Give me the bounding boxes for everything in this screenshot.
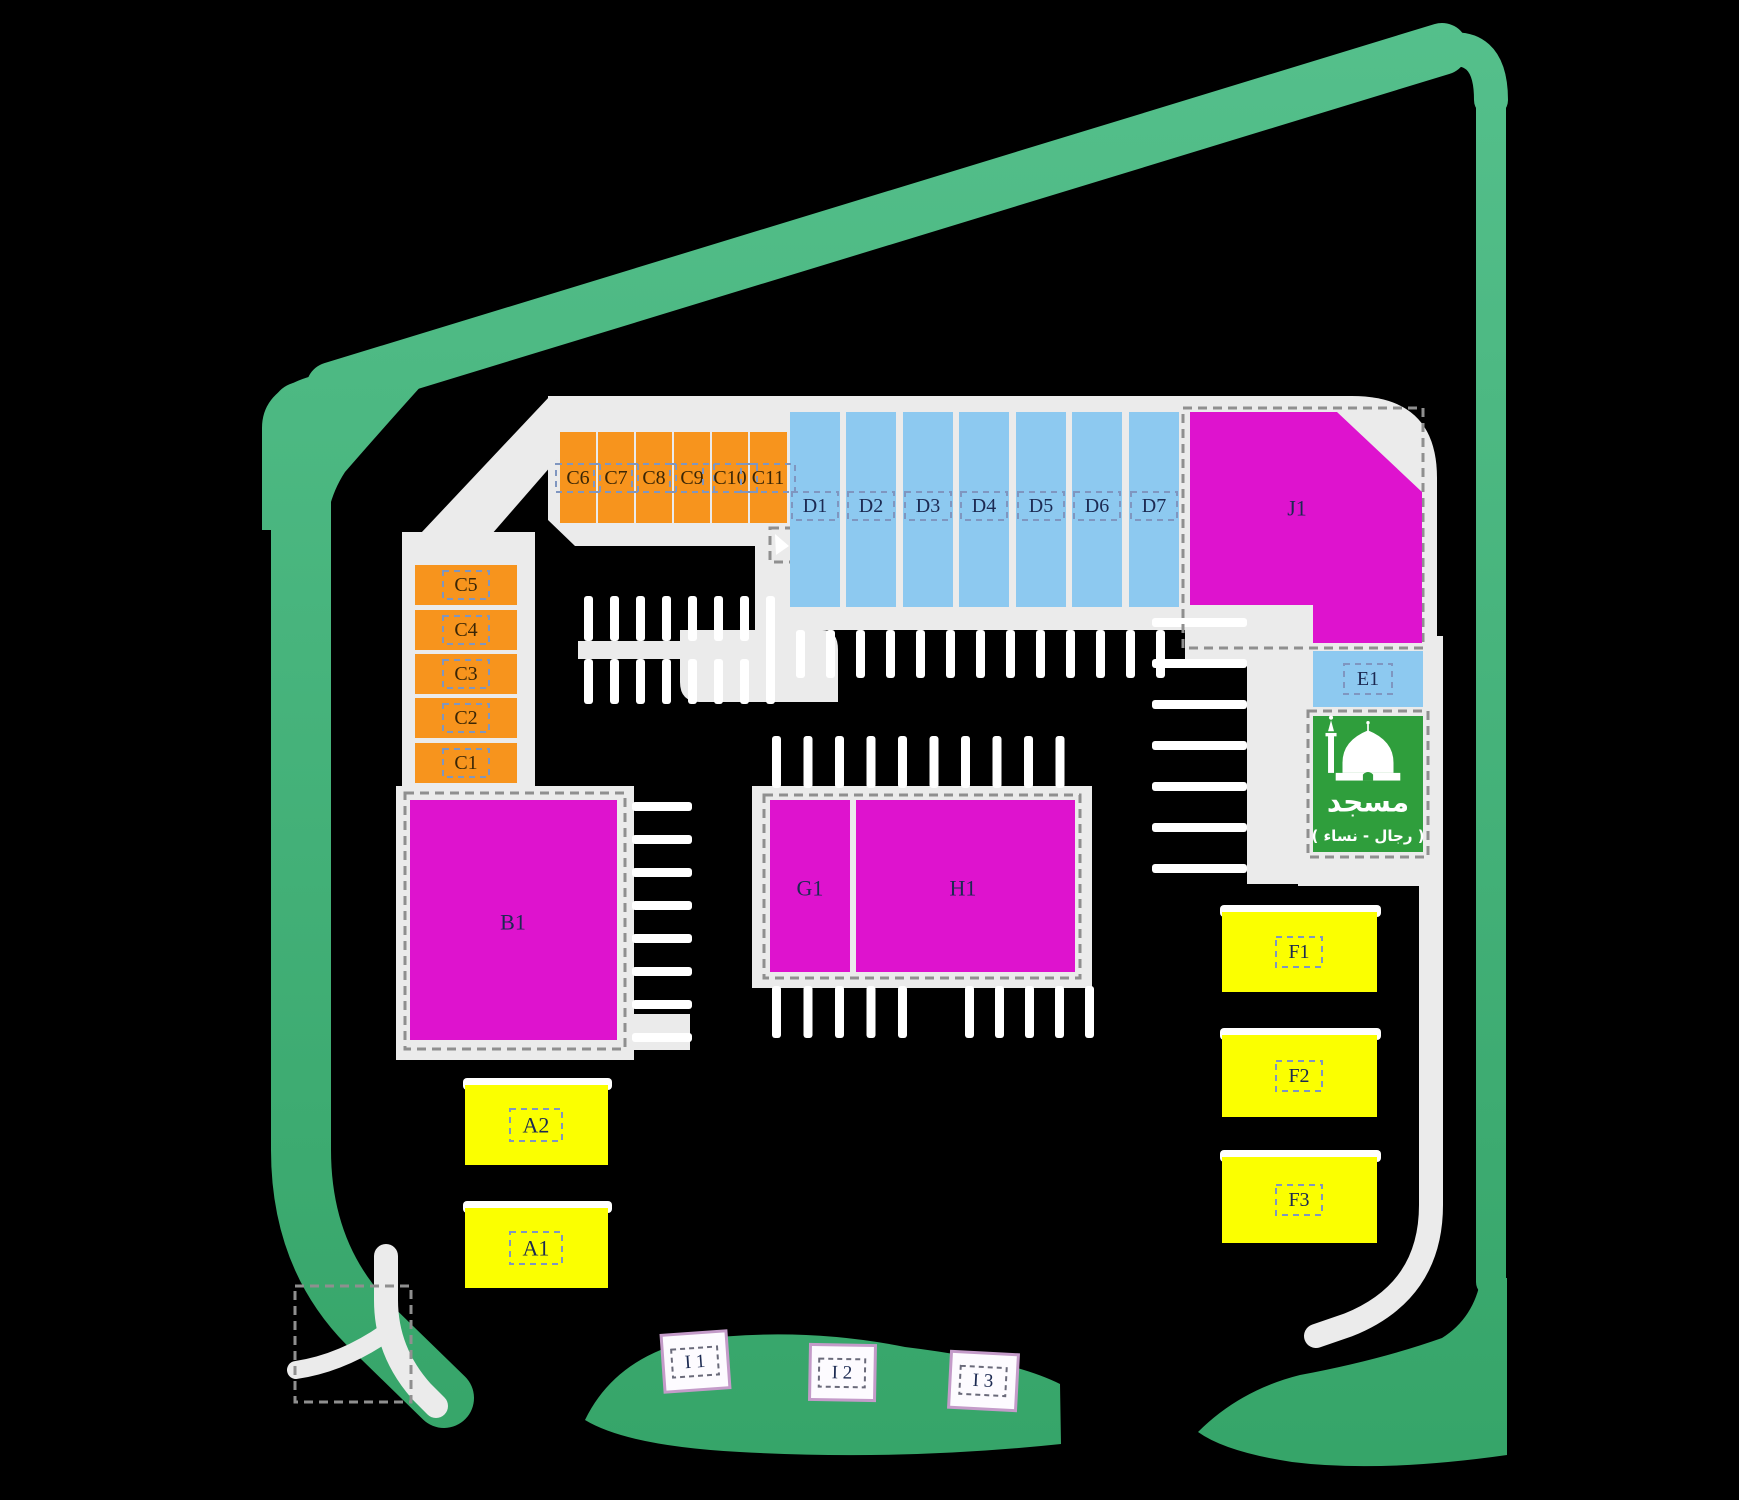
unit-label-C11: C11	[752, 467, 785, 489]
parking-stall	[632, 1000, 692, 1009]
unit-label-C2: C2	[454, 707, 477, 729]
parking-stall	[804, 736, 813, 788]
unit-label-C5: C5	[454, 574, 477, 596]
parking-stall	[1156, 630, 1165, 678]
parking-stall	[632, 802, 692, 811]
unit-label-C6: C6	[566, 467, 589, 489]
parking-stall	[961, 736, 970, 788]
parking-stall	[1066, 630, 1075, 678]
parking-stall	[584, 659, 593, 704]
unit-label-D1: D1	[803, 495, 827, 517]
parking-stall	[632, 934, 692, 943]
parking-stall	[1006, 630, 1015, 678]
unit-label-H1: H1	[950, 876, 977, 901]
parking-stall	[796, 630, 805, 678]
parking-stall	[1152, 618, 1247, 627]
parking-stall	[886, 630, 895, 678]
unit-label-D7: D7	[1142, 495, 1166, 517]
parking-stall	[1055, 986, 1064, 1038]
parking-stall	[1096, 630, 1105, 678]
parking-stall	[632, 967, 692, 976]
road-connector	[680, 630, 838, 702]
parking-stall	[688, 596, 697, 641]
unit-label-A2: A2	[523, 1113, 550, 1138]
parking-stall	[610, 596, 619, 641]
parking-stall	[772, 986, 781, 1038]
kiosk-label-I1: I 1	[684, 1351, 706, 1373]
mosque-label: مسجد	[1327, 786, 1409, 819]
parking-stall	[662, 596, 671, 641]
parking-stall	[1152, 823, 1247, 832]
road-parking-island-spine	[578, 641, 790, 659]
parking-stall	[740, 596, 749, 641]
kiosk-I1: I 1	[661, 1331, 730, 1392]
parking-stall	[584, 596, 593, 641]
kiosk-I2: I 2	[810, 1344, 876, 1400]
parking-stall	[772, 736, 781, 788]
parking-stall	[1025, 986, 1034, 1038]
unit-label-C3: C3	[454, 663, 477, 685]
unit-label-C1: C1	[454, 752, 477, 774]
unit-label-D3: D3	[916, 495, 940, 517]
parking-stall	[632, 835, 692, 844]
parking-stall	[1152, 864, 1247, 873]
kiosk-I3: I 3	[949, 1351, 1019, 1410]
parking-stall	[636, 659, 645, 704]
unit-label-B1: B1	[500, 910, 526, 935]
unit-label-F1: F1	[1288, 941, 1309, 963]
parking-stall	[930, 736, 939, 788]
unit-label-C4: C4	[454, 619, 477, 641]
unit-label-D4: D4	[972, 495, 996, 517]
unit-label-D6: D6	[1085, 495, 1109, 517]
parking-stall	[856, 630, 865, 678]
parking-stall	[636, 596, 645, 641]
parking-stall	[976, 630, 985, 678]
parking-stall	[835, 986, 844, 1038]
parking-stall	[610, 659, 619, 704]
mosque-sublabel: ( رجال - نساء )	[1311, 827, 1424, 845]
parking-stall	[662, 659, 671, 704]
parking-stall	[965, 986, 974, 1038]
parking-stall	[826, 630, 835, 678]
parking-stall	[1152, 700, 1247, 709]
parking-stall	[766, 630, 775, 678]
unit-label-C9: C9	[680, 467, 703, 489]
unit-label-F3: F3	[1288, 1189, 1309, 1211]
road-aisle-mosque-west	[1247, 610, 1313, 884]
parking-stall	[1056, 736, 1065, 788]
unit-label-C7: C7	[604, 467, 627, 489]
unit-label-E1: E1	[1357, 668, 1379, 690]
site-plan-svg: C6C7C8C9C10C11C5C4C3C2C1D1D2D3D4D5D6D7J1…	[0, 0, 1739, 1500]
site-plan-page: C6C7C8C9C10C11C5C4C3C2C1D1D2D3D4D5D6D7J1…	[0, 0, 1739, 1500]
parking-stall	[1152, 659, 1247, 668]
parking-stall	[1126, 630, 1135, 678]
unit-label-J1: J1	[1287, 496, 1307, 521]
unit-label-D5: D5	[1029, 495, 1053, 517]
mosque-group: مسجد( رجال - نساء )	[1311, 716, 1424, 852]
unit-label-A1: A1	[523, 1236, 550, 1261]
parking-stall	[916, 630, 925, 678]
parking-stall	[898, 736, 907, 788]
parking-stall	[688, 659, 697, 704]
unit-label-C8: C8	[642, 467, 665, 489]
parking-stall	[714, 659, 723, 704]
parking-stall	[1024, 736, 1033, 788]
parking-stall	[946, 630, 955, 678]
kiosk-label-I3: I 3	[972, 1370, 994, 1392]
parking-stall	[632, 868, 692, 877]
parking-stall	[740, 659, 749, 704]
parking-stall	[632, 901, 692, 910]
parking-stall	[1152, 782, 1247, 791]
unit-label-D2: D2	[859, 495, 883, 517]
parking-stall	[867, 736, 876, 788]
parking-stall	[714, 596, 723, 641]
unit-label-F2: F2	[1288, 1065, 1309, 1087]
parking-stall	[632, 1033, 692, 1042]
parking-stall	[804, 986, 813, 1038]
parking-stall	[898, 986, 907, 1038]
parking-stall	[1152, 741, 1247, 750]
parking-stall	[993, 736, 1002, 788]
parking-stall	[867, 986, 876, 1038]
parking-stall	[1036, 630, 1045, 678]
parking-stall	[995, 986, 1004, 1038]
unit-label-G1: G1	[797, 876, 824, 901]
kiosk-label-I2: I 2	[832, 1362, 853, 1383]
parking-stall	[835, 736, 844, 788]
parking-stall	[1085, 986, 1094, 1038]
